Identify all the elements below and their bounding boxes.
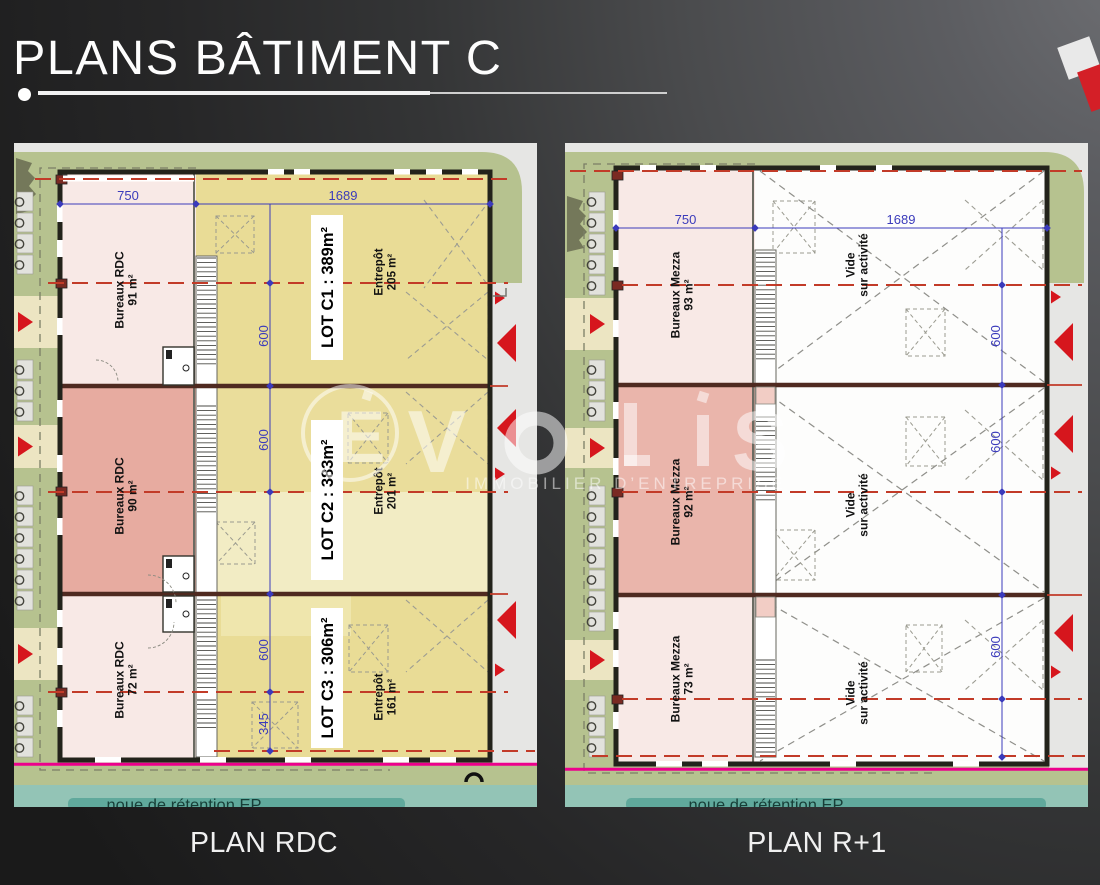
svg-text:92 m²: 92 m² <box>682 486 696 517</box>
svg-text:Bureaux Mezza: Bureaux Mezza <box>669 458 683 545</box>
svg-text:1689: 1689 <box>887 212 916 227</box>
svg-text:noue de rétention EP: noue de rétention EP <box>688 797 843 808</box>
svg-text:1689: 1689 <box>329 188 358 203</box>
svg-text:600: 600 <box>988 325 1003 347</box>
svg-text:73 m²: 73 m² <box>682 663 696 694</box>
svg-text:90 m²: 90 m² <box>126 480 140 511</box>
svg-text:Bureaux RDC: Bureaux RDC <box>113 251 127 329</box>
svg-text:161 m²: 161 m² <box>387 679 399 716</box>
svg-text:201 m²: 201 m² <box>387 473 399 510</box>
svg-text:sur activité: sur activité <box>857 661 871 725</box>
svg-text:Vide: Vide <box>844 252 858 277</box>
svg-text:Vide: Vide <box>844 680 858 705</box>
svg-text:Vide: Vide <box>844 492 858 517</box>
svg-text:600: 600 <box>988 431 1003 453</box>
svg-text:LOT C3 : 306m²: LOT C3 : 306m² <box>319 617 337 739</box>
svg-text:Entrepôt: Entrepôt <box>374 248 386 295</box>
svg-text:LOT C2 : 383m²: LOT C2 : 383m² <box>319 439 337 561</box>
svg-text:Bureaux RDC: Bureaux RDC <box>113 641 127 719</box>
svg-text:91 m²: 91 m² <box>126 274 140 305</box>
svg-text:Bureaux Mezza: Bureaux Mezza <box>669 635 683 722</box>
svg-text:205 m²: 205 m² <box>387 254 399 291</box>
svg-text:Entrepôt: Entrepôt <box>374 673 386 720</box>
svg-text:sur activité: sur activité <box>857 473 871 537</box>
svg-text:Bureaux Mezza: Bureaux Mezza <box>669 251 683 338</box>
svg-text:345: 345 <box>256 713 271 735</box>
svg-text:750: 750 <box>117 188 139 203</box>
svg-text:93 m²: 93 m² <box>682 279 696 310</box>
svg-text:600: 600 <box>256 639 271 661</box>
svg-text:600: 600 <box>988 636 1003 658</box>
svg-text:Bureaux RDC: Bureaux RDC <box>113 457 127 535</box>
svg-text:LOT C1 : 389m²: LOT C1 : 389m² <box>319 226 337 348</box>
svg-text:Entrepôt: Entrepôt <box>374 467 386 514</box>
svg-text:sur activité: sur activité <box>857 233 871 297</box>
svg-text:600: 600 <box>256 429 271 451</box>
svg-text:noue de rétention EP: noue de rétention EP <box>106 797 261 808</box>
svg-text:750: 750 <box>675 212 697 227</box>
svg-text:600: 600 <box>256 325 271 347</box>
svg-text:72 m²: 72 m² <box>126 664 140 695</box>
